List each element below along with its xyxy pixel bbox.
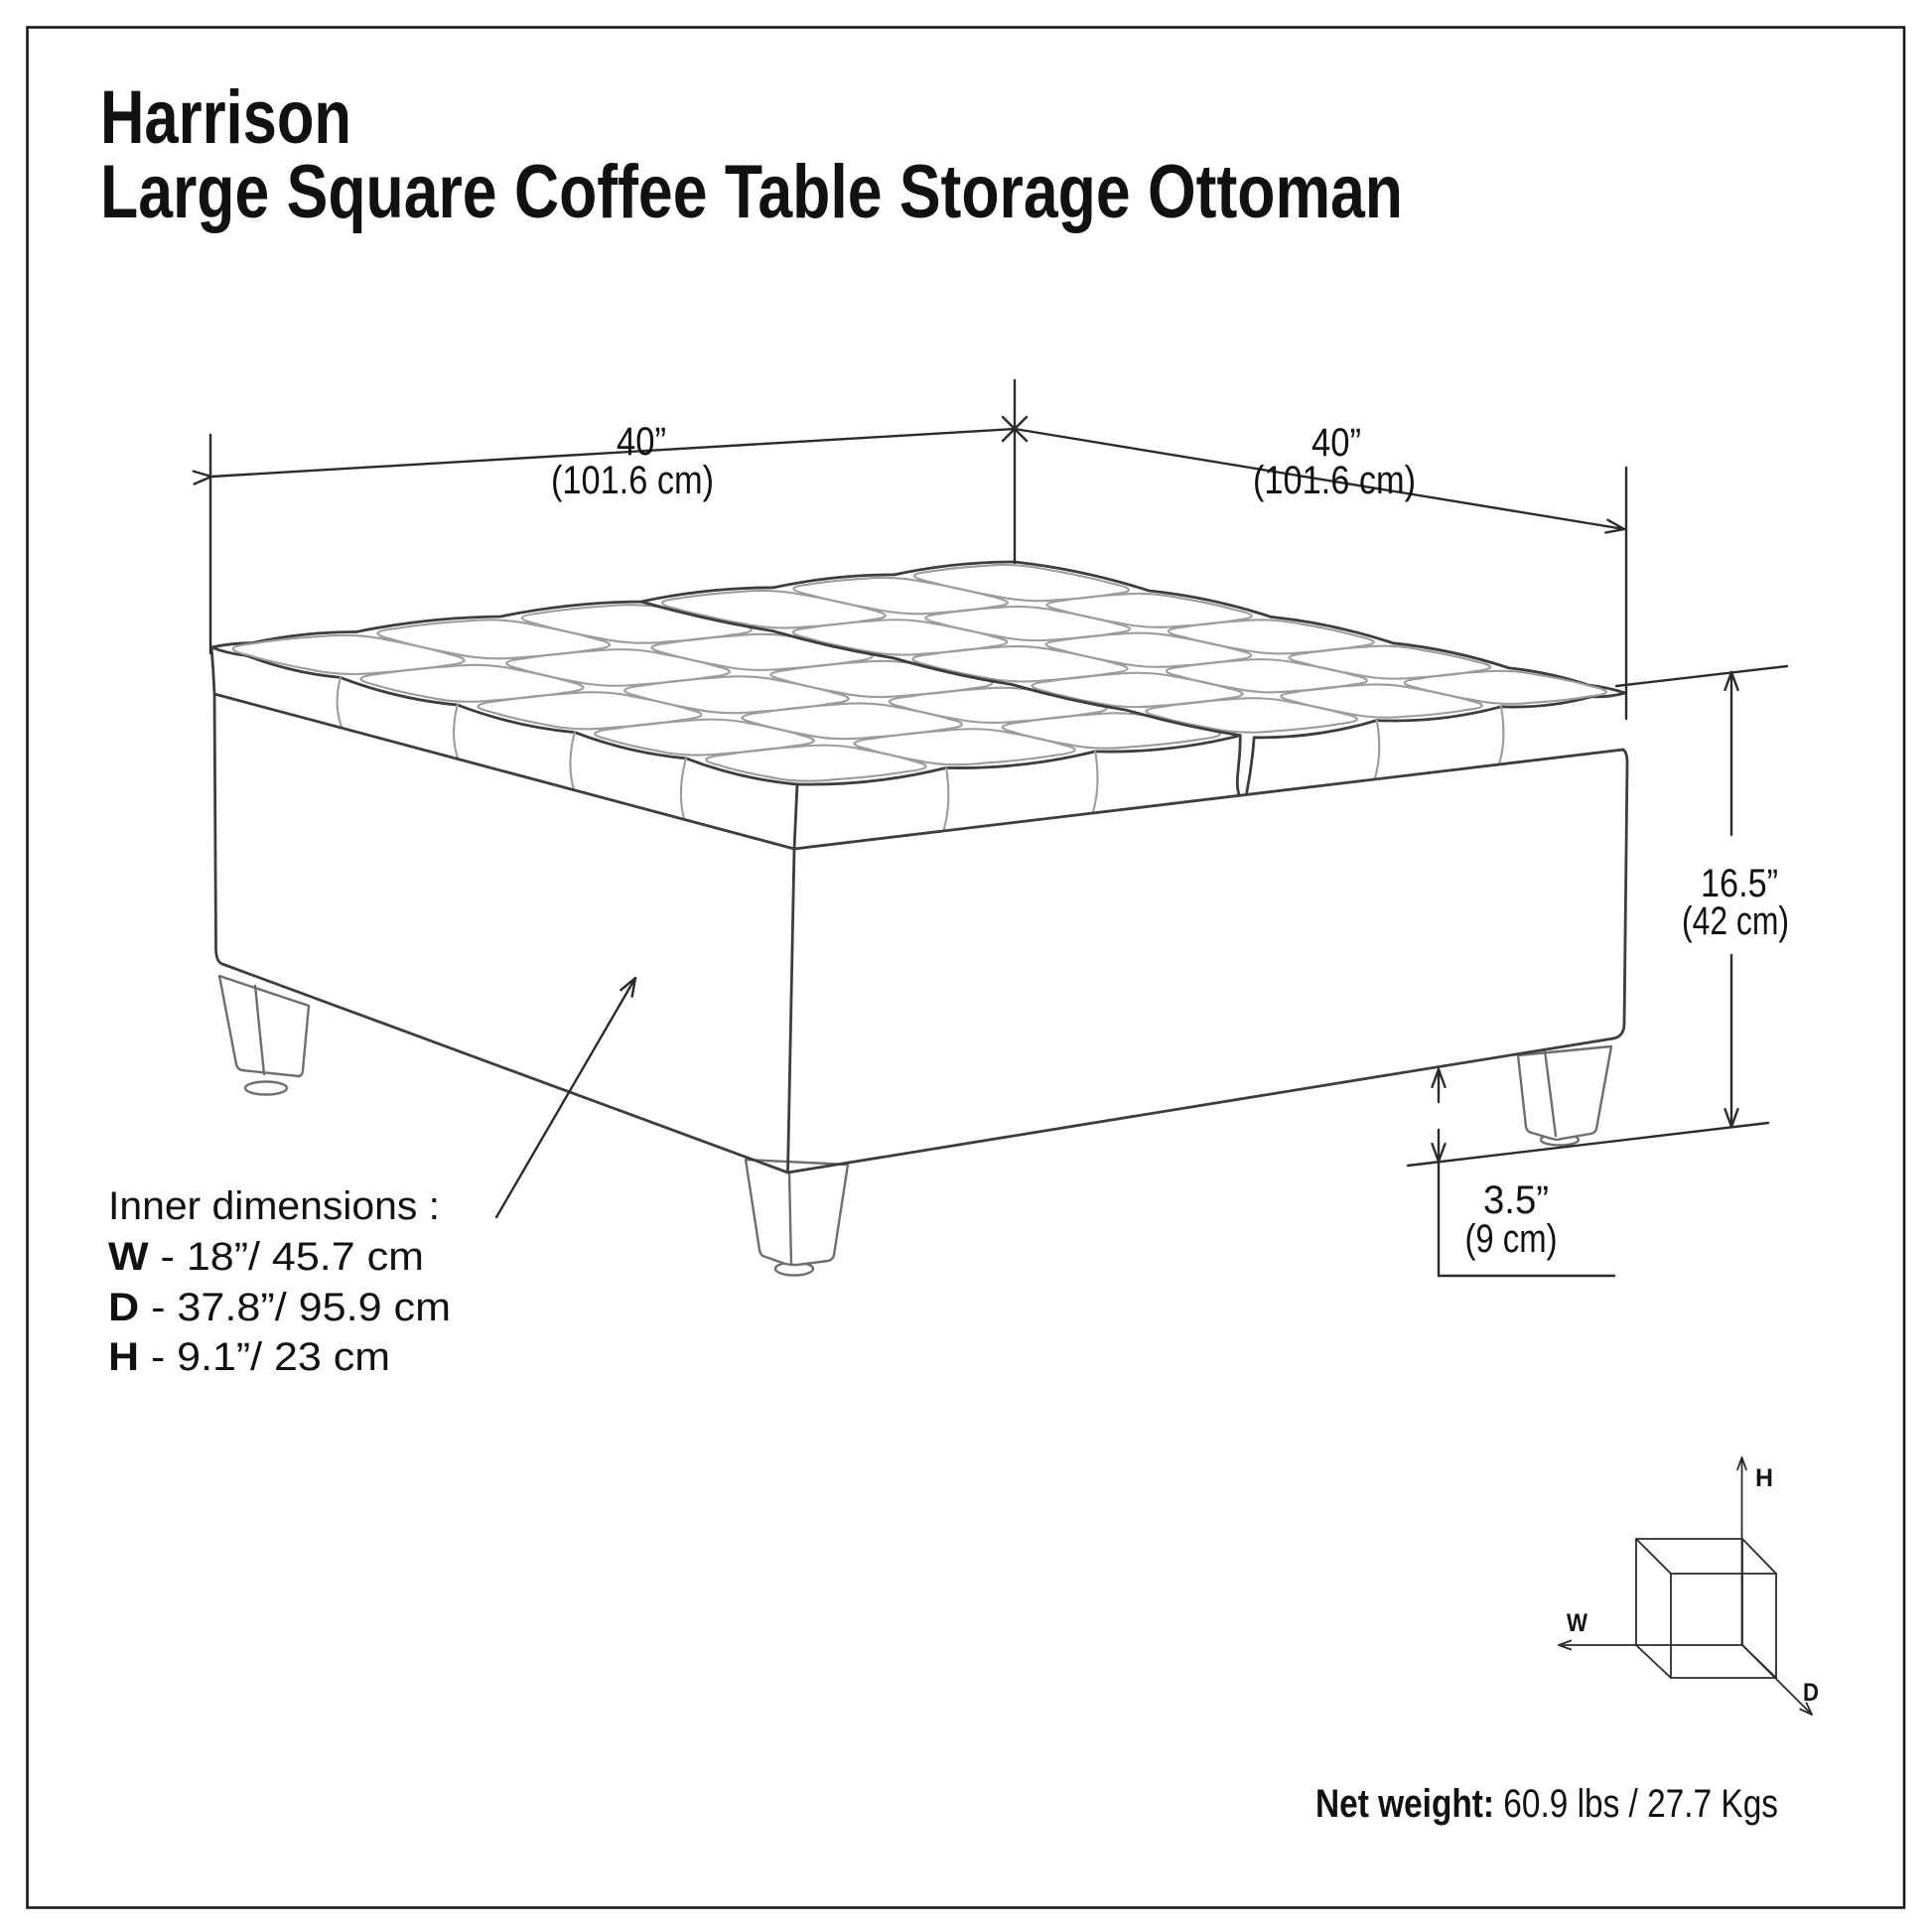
svg-text:Net weight: 60.9 lbs / 27.7 Kg: Net weight: 60.9 lbs / 27.7 Kgs [1315, 1782, 1778, 1826]
svg-text:(9 cm): (9 cm) [1465, 1217, 1558, 1261]
svg-text:W - 18”/ 45.7 cm: W - 18”/ 45.7 cm [108, 1235, 424, 1279]
svg-text:Harrison: Harrison [100, 75, 351, 160]
svg-text:D - 37.8”/ 95.9 cm: D - 37.8”/ 95.9 cm [108, 1286, 451, 1329]
svg-text:Inner dimensions :: Inner dimensions : [108, 1184, 440, 1228]
svg-text:D: D [1803, 1679, 1819, 1707]
svg-text:40”: 40” [617, 420, 666, 464]
svg-text:Large Square Coffee Table Stor: Large Square Coffee Table Storage Ottoma… [100, 150, 1403, 234]
svg-text:3.5”: 3.5” [1483, 1178, 1549, 1222]
svg-text:H - 9.1”/ 23 cm: H - 9.1”/ 23 cm [108, 1335, 390, 1379]
svg-text:(101.6 cm): (101.6 cm) [551, 459, 714, 502]
svg-text:(42 cm): (42 cm) [1682, 899, 1789, 943]
svg-text:H: H [1755, 1464, 1773, 1492]
svg-text:(101.6 cm): (101.6 cm) [1253, 459, 1416, 502]
svg-text:W: W [1567, 1609, 1587, 1637]
